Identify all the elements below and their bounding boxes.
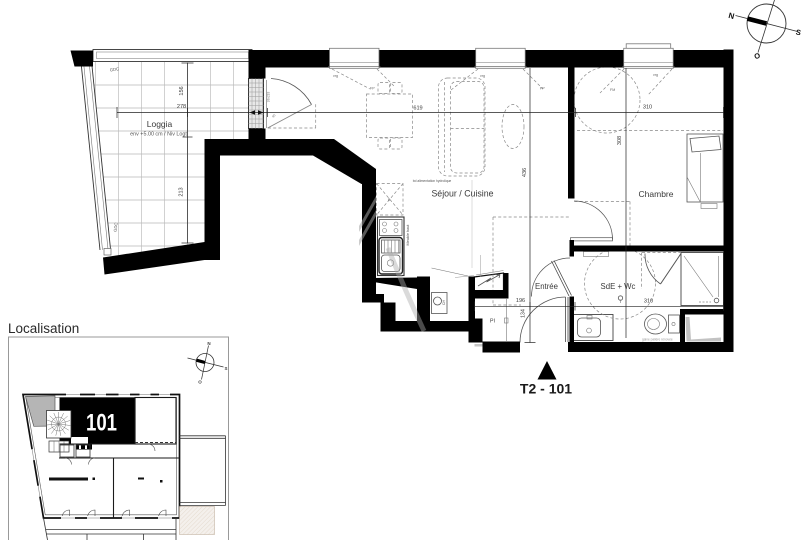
svg-text:R: R <box>388 198 391 202</box>
svg-text:FP: FP <box>540 87 545 91</box>
svg-text:156: 156 <box>179 86 185 95</box>
svg-text:93x218: 93x218 <box>267 92 271 103</box>
svg-text:213: 213 <box>179 187 185 196</box>
svg-text:vrg: vrg <box>480 74 485 78</box>
svg-text:gaine palière rénovée: gaine palière rénovée <box>642 338 673 342</box>
svg-text:S: S <box>224 366 227 371</box>
svg-text:vrg: vrg <box>653 73 658 77</box>
svg-text:FP: FP <box>370 87 375 91</box>
svg-text:Entrée: Entrée <box>535 282 558 291</box>
svg-text:436: 436 <box>522 168 528 177</box>
svg-text:196: 196 <box>516 298 525 304</box>
svg-text:bd alimentation hydrolique: bd alimentation hydrolique <box>413 179 452 183</box>
svg-text:101: 101 <box>86 410 117 437</box>
svg-text:Séjour / Cuisine: Séjour / Cuisine <box>431 189 493 199</box>
svg-text:310: 310 <box>643 105 652 111</box>
svg-text:Loggia: Loggia <box>147 119 173 129</box>
svg-text:env +5.00 cm / Niv Logt: env +5.00 cm / Niv Logt <box>130 132 187 138</box>
svg-text:Meuble haut: Meuble haut <box>406 224 410 246</box>
svg-text:Chambre: Chambre <box>639 189 674 199</box>
svg-text:308: 308 <box>617 136 623 145</box>
svg-text:T2 - 101: T2 - 101 <box>520 381 572 397</box>
svg-text:PI: PI <box>490 319 496 325</box>
svg-text:vrg: vrg <box>333 74 338 78</box>
svg-text:SdE + Wc: SdE + Wc <box>601 282 636 291</box>
svg-text:O: O <box>198 380 202 385</box>
svg-text:134: 134 <box>521 309 527 318</box>
svg-text:Localisation: Localisation <box>8 321 79 336</box>
svg-text:619: 619 <box>413 106 422 112</box>
svg-text:FM: FM <box>610 88 615 92</box>
svg-text:278: 278 <box>177 104 186 110</box>
svg-text:N: N <box>207 341 210 346</box>
svg-text:CH: CH <box>442 300 446 306</box>
svg-text:310: 310 <box>644 299 653 305</box>
